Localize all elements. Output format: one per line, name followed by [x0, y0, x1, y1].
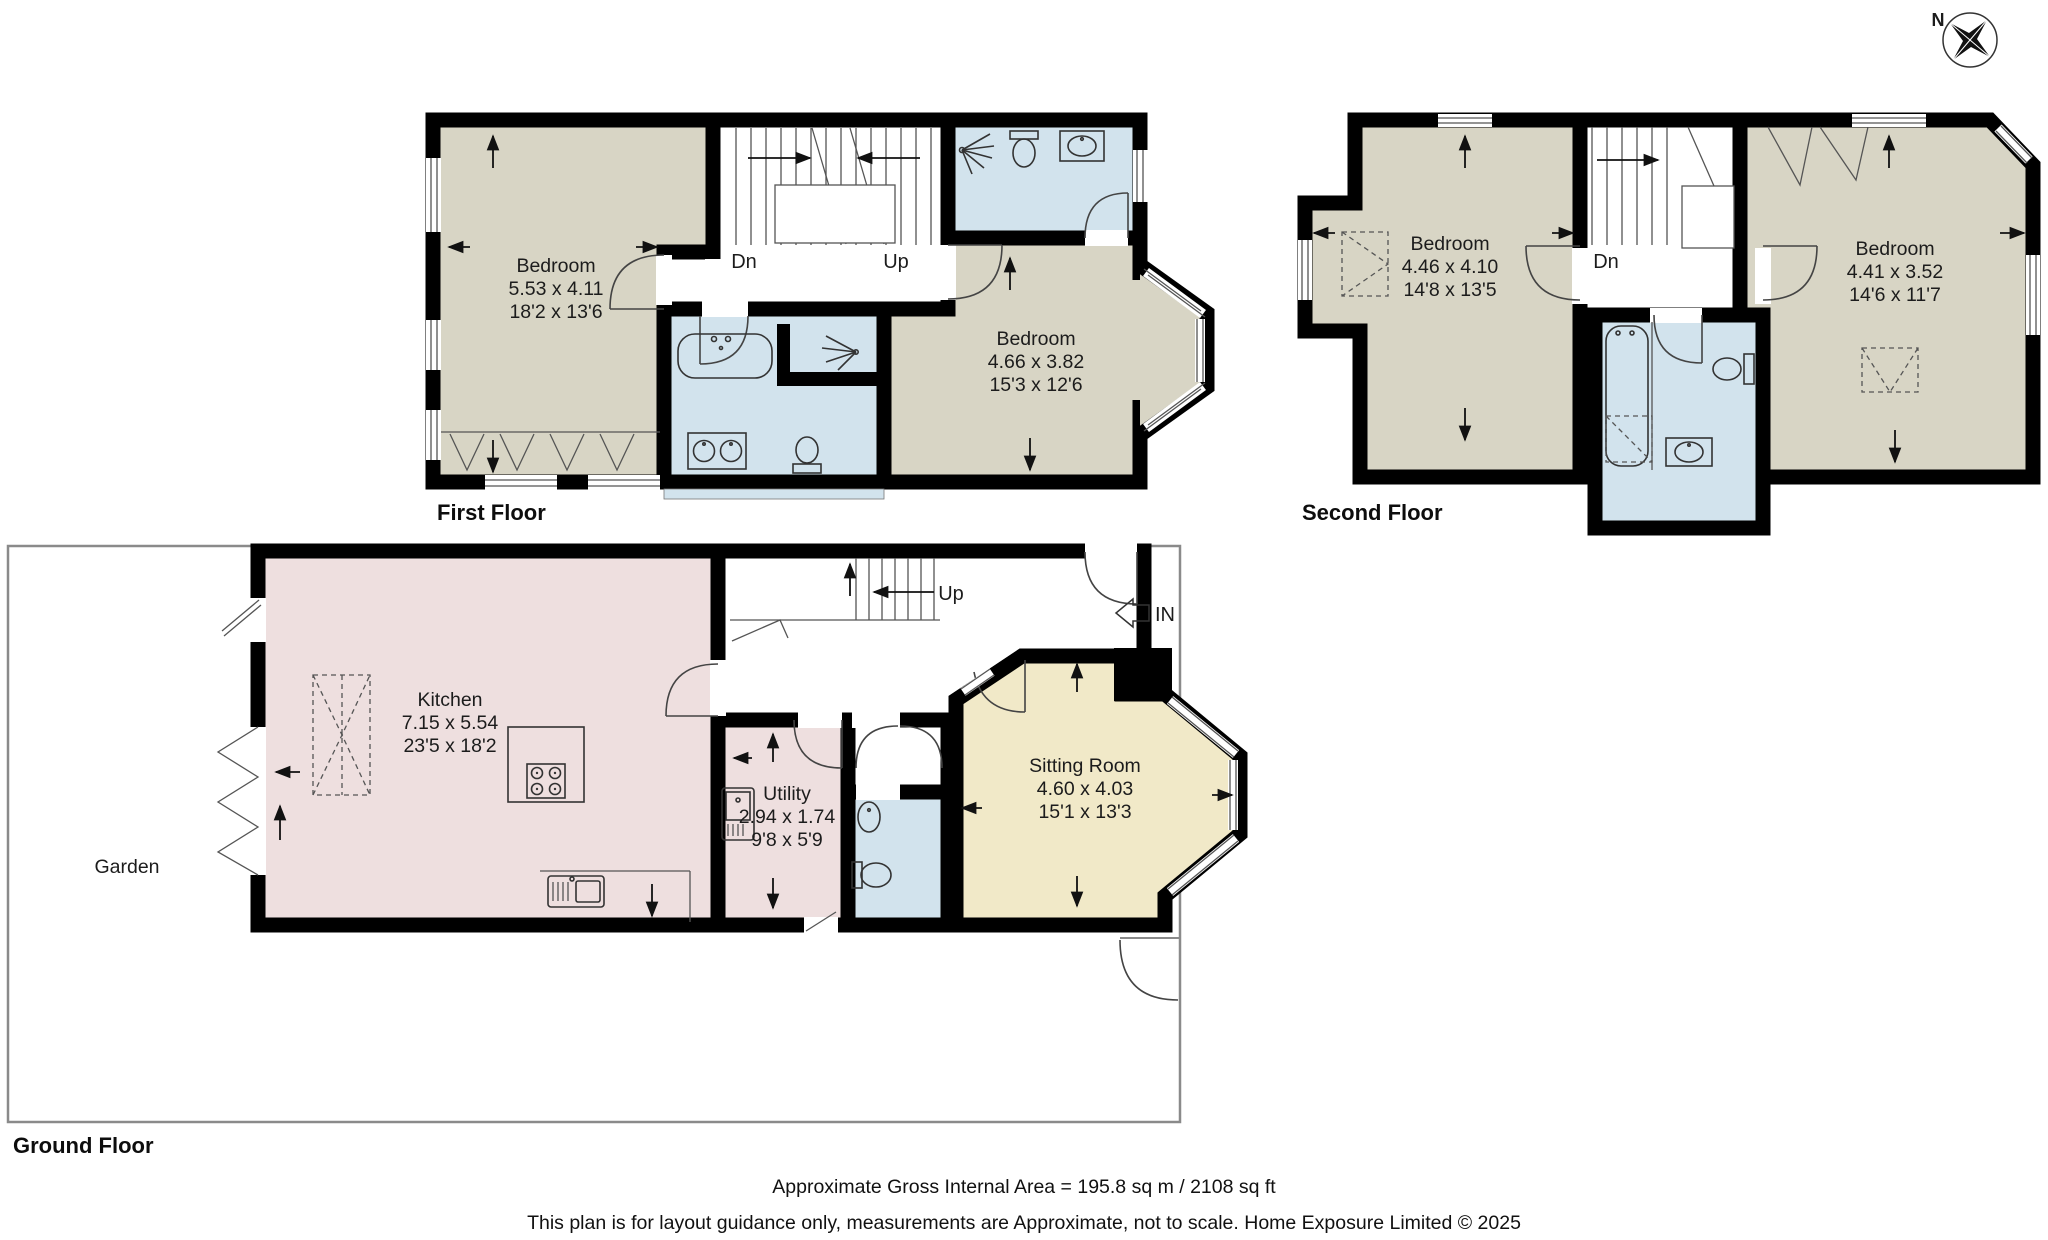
first-floor-plan: Bedroom 5.53 x 4.11 18'2 x 13'6 Bedroom …	[426, 120, 1207, 499]
shower-room	[948, 120, 1140, 238]
sitting-room-metric: 4.60 x 4.03	[1037, 778, 1134, 800]
kitchen-name: Kitchen	[417, 689, 482, 711]
bedroom-right-imperial: 15'3 x 12'6	[989, 374, 1082, 396]
bathroom	[1595, 315, 1763, 528]
lightwell-strip	[664, 489, 884, 499]
utility-name: Utility	[763, 783, 811, 805]
utility-imperial: 9'8 x 5'9	[751, 829, 822, 851]
kitchen-metric: 7.15 x 5.54	[402, 712, 499, 734]
wc-room	[848, 792, 948, 925]
stairs-up-label: Up	[938, 583, 964, 605]
sitting-room-name: Sitting Room	[1029, 755, 1141, 777]
entrance-label: IN	[1155, 604, 1175, 626]
bedroom-right-imperial: 14'6 x 11'7	[1849, 284, 1941, 306]
bedroom-right-name: Bedroom	[996, 328, 1075, 350]
shower-wall	[782, 372, 877, 386]
stairs-up-label: Up	[883, 251, 909, 273]
compass-north-label: N	[1932, 10, 1945, 30]
disclaimer-text: This plan is for layout guidance only, m…	[0, 1212, 2048, 1235]
second-floor-plan: Bedroom 4.46 x 4.10 14'8 x 13'5 Bedroom …	[1298, 114, 2040, 528]
bedroom-right-name: Bedroom	[1855, 238, 1934, 260]
ground-floor-plan: Kitchen 7.15 x 5.54 23'5 x 18'2 Utility …	[8, 543, 1240, 1122]
garden-label: Garden	[94, 856, 159, 878]
ground-floor-title: Ground Floor	[13, 1133, 154, 1159]
floorplan-page: Bedroom 5.53 x 4.11 18'2 x 13'6 Bedroom …	[0, 0, 2048, 1240]
bedroom-right-metric: 4.41 x 3.52	[1847, 261, 1944, 283]
bedroom-left-name: Bedroom	[1410, 233, 1489, 255]
floorplan-drawing: Bedroom 5.53 x 4.11 18'2 x 13'6 Bedroom …	[0, 0, 2048, 1240]
bathroom	[664, 309, 884, 482]
compass-icon: N	[1932, 10, 1998, 67]
first-floor-title: First Floor	[437, 500, 546, 526]
lobby	[848, 720, 948, 792]
bedroom-left-name: Bedroom	[516, 255, 595, 277]
sitting-room-imperial: 15'1 x 13'3	[1038, 801, 1131, 823]
bedroom-left-metric: 4.46 x 4.10	[1402, 256, 1499, 278]
kitchen-imperial: 23'5 x 18'2	[403, 735, 496, 757]
bedroom-left-metric: 5.53 x 4.11	[508, 278, 603, 300]
corner-pillar	[1114, 648, 1172, 701]
stairs-down-label: Dn	[731, 251, 757, 273]
bay-opening	[1132, 280, 1148, 400]
utility-metric: 2.94 x 1.74	[739, 806, 836, 828]
bedroom-right-metric: 4.66 x 3.82	[988, 351, 1085, 373]
bedroom-left-imperial: 14'8 x 13'5	[1403, 279, 1496, 301]
stairs-down-label: Dn	[1593, 251, 1619, 273]
second-floor-title: Second Floor	[1302, 500, 1443, 526]
gross-internal-area-text: Approximate Gross Internal Area = 195.8 …	[0, 1176, 2048, 1199]
bedroom-left-imperial: 18'2 x 13'6	[509, 301, 602, 323]
